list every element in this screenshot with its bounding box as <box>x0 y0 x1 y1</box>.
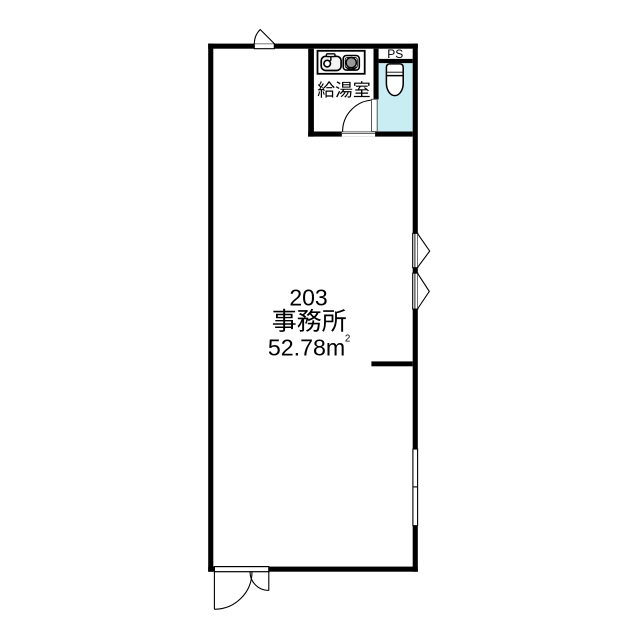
svg-text:203: 203 <box>289 285 327 311</box>
svg-text:52.78m: 52.78m <box>268 334 345 360</box>
svg-text:2: 2 <box>345 334 350 345</box>
svg-text:PS: PS <box>387 47 403 61</box>
